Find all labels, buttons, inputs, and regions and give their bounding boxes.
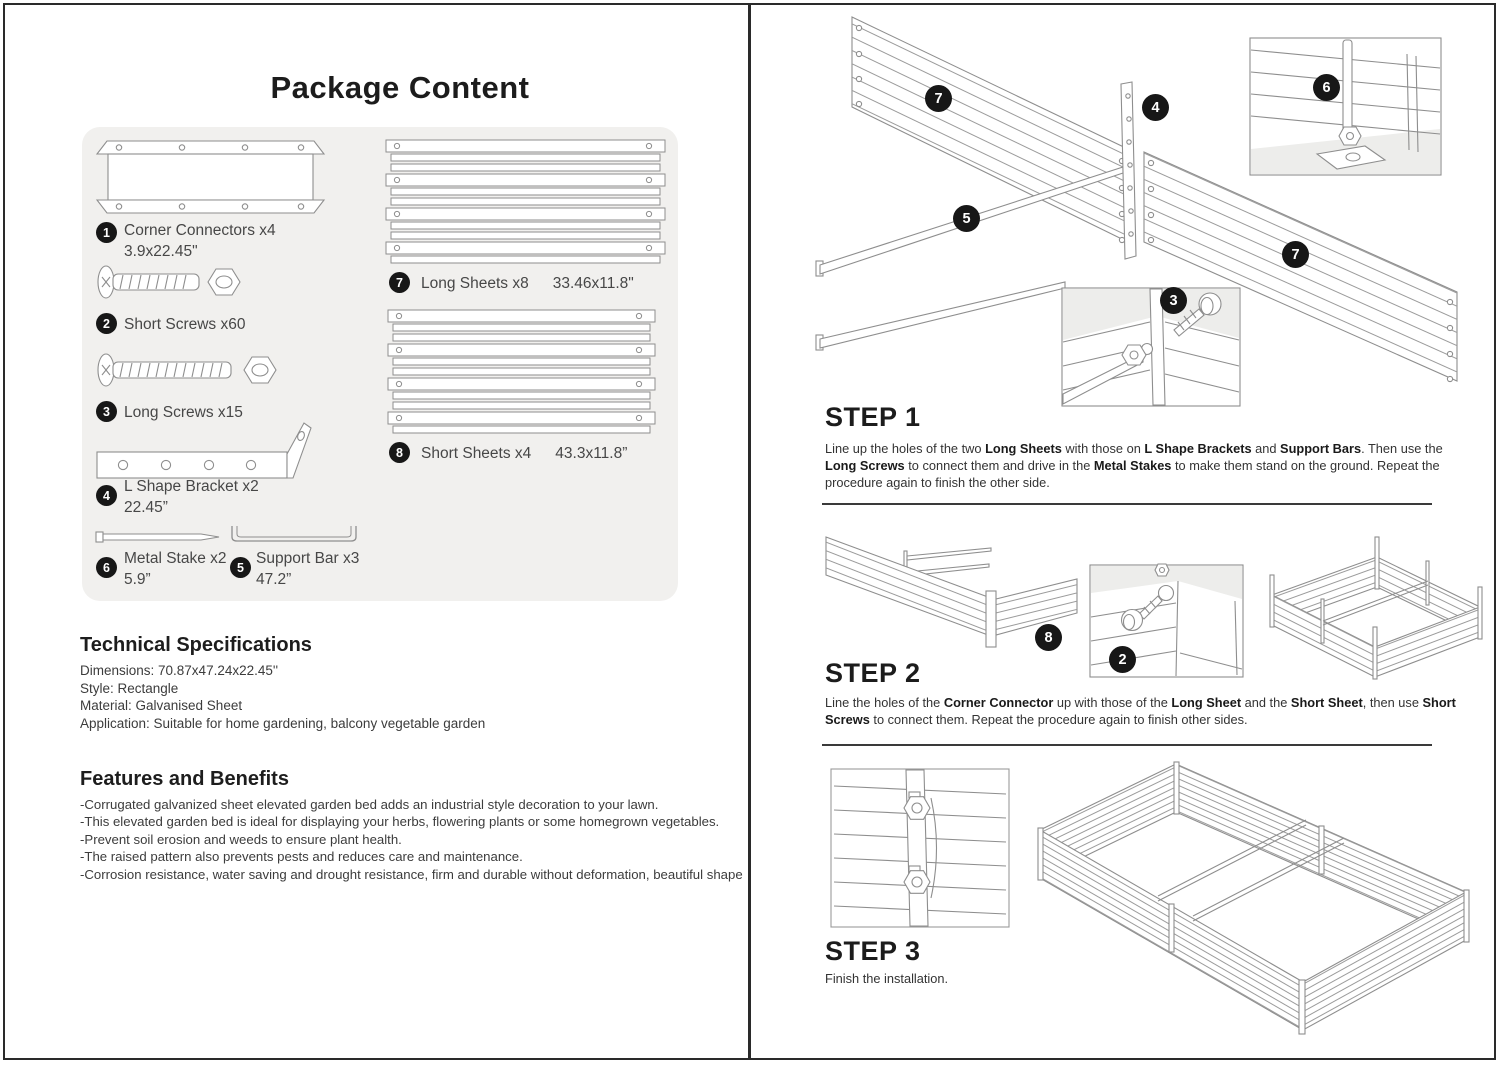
- callout-7: 7: [389, 272, 410, 293]
- item-label: Support Bar x3: [256, 548, 359, 569]
- item-l-shape-bracket: L Shape Bracket x2 22.45”: [124, 476, 259, 518]
- callout-5: 5: [230, 557, 251, 578]
- callout-3: 3: [96, 401, 117, 422]
- spec-material: Material: Galvanised Sheet: [80, 697, 740, 715]
- diagram-callout-support-bar: 5: [953, 205, 980, 232]
- spec-style: Style: Rectangle: [80, 680, 740, 698]
- item-metal-stake: Metal Stake x2 5.9”: [124, 548, 227, 590]
- long-screw-illustration: [95, 350, 287, 390]
- item-label: Corner Connectors x4: [124, 220, 276, 241]
- features-list: -Corrugated galvanized sheet elevated ga…: [80, 796, 745, 883]
- l-shape-bracket-illustration: [95, 418, 315, 482]
- spec-dimensions: Dimensions: 70.87x47.24x22.45'': [80, 662, 740, 680]
- callout-1: 1: [96, 222, 117, 243]
- support-bar-illustration: [228, 524, 362, 548]
- item-label: Short Screws x60: [124, 314, 245, 335]
- step2-heading: STEP 2: [825, 658, 921, 689]
- item-size: 22.45”: [124, 497, 259, 518]
- step1-diagram: [805, 8, 1495, 408]
- diagram-callout-long-sheet: 7: [925, 85, 952, 112]
- manual-page: Package Content: [0, 0, 1500, 1065]
- center-divider: [748, 3, 751, 1060]
- step3-detail-diagram: [830, 768, 1010, 928]
- diagram-callout-short-screw: 2: [1109, 646, 1136, 673]
- item-long-screws: Long Screws x15: [124, 402, 243, 423]
- item-short-screws: Short Screws x60: [124, 314, 245, 335]
- item-label: L Shape Bracket x2: [124, 476, 259, 497]
- diagram-callout-short-sheet: 8: [1035, 624, 1062, 651]
- feature-line: -The raised pattern also prevents pests …: [80, 848, 745, 865]
- feature-line: -Prevent soil erosion and weeds to ensur…: [80, 831, 745, 848]
- feature-line: -This elevated garden bed is ideal for d…: [80, 813, 745, 830]
- item-size: 5.9”: [124, 569, 227, 590]
- diagram-callout-metal-stake: 6: [1313, 74, 1340, 101]
- diagram-callout-long-screw: 3: [1160, 287, 1187, 314]
- callout-6: 6: [96, 557, 117, 578]
- tech-specs-list: Dimensions: 70.87x47.24x22.45'' Style: R…: [80, 662, 740, 732]
- callout-8: 8: [389, 442, 410, 463]
- diagram-callout-l-bracket: 4: [1142, 94, 1169, 121]
- short-screw-illustration: [95, 262, 245, 302]
- diagram-callout-long-sheet-2: 7: [1282, 241, 1309, 268]
- short-sheets-illustration: [385, 308, 659, 438]
- item-label: Short Sheets x4: [421, 443, 531, 464]
- item-support-bar: Support Bar x3 47.2”: [256, 548, 359, 590]
- item-label: Metal Stake x2: [124, 548, 227, 569]
- step1-text: Line up the holes of the two Long Sheets…: [825, 440, 1443, 491]
- item-size: 33.46x11.8": [553, 273, 634, 294]
- item-corner-connectors: Corner Connectors x4 3.9x22.45": [124, 220, 276, 262]
- feature-line: -Corrugated galvanized sheet elevated ga…: [80, 796, 745, 813]
- item-short-sheets: Short Sheets x4 43.3x11.8”: [421, 443, 627, 464]
- callout-2: 2: [96, 313, 117, 334]
- step1-heading: STEP 1: [825, 402, 921, 433]
- features-heading: Features and Benefits: [80, 768, 289, 791]
- item-label: Long Sheets x8: [421, 273, 529, 294]
- item-long-sheets: Long Sheets x8 33.46x11.8": [421, 273, 634, 294]
- item-label: Long Screws x15: [124, 402, 243, 423]
- item-size: 43.3x11.8”: [555, 443, 627, 464]
- spec-application: Application: Suitable for home gardening…: [80, 715, 740, 733]
- item-size: 3.9x22.45": [124, 241, 276, 262]
- section-rule: [822, 503, 1432, 505]
- finished-bed-diagram: [1028, 742, 1493, 1042]
- long-sheets-illustration: [383, 138, 669, 266]
- feature-line: -Corrosion resistance, water saving and …: [80, 866, 745, 883]
- page-title: Package Content: [80, 70, 720, 106]
- step3-heading: STEP 3: [825, 936, 921, 967]
- tech-specs-heading: Technical Specifications: [80, 634, 312, 657]
- metal-stake-illustration: [95, 528, 227, 546]
- callout-4: 4: [96, 485, 117, 506]
- corner-connector-illustration: [95, 138, 327, 220]
- step2-text: Line the holes of the Corner Connector u…: [825, 694, 1465, 728]
- item-size: 47.2”: [256, 569, 359, 590]
